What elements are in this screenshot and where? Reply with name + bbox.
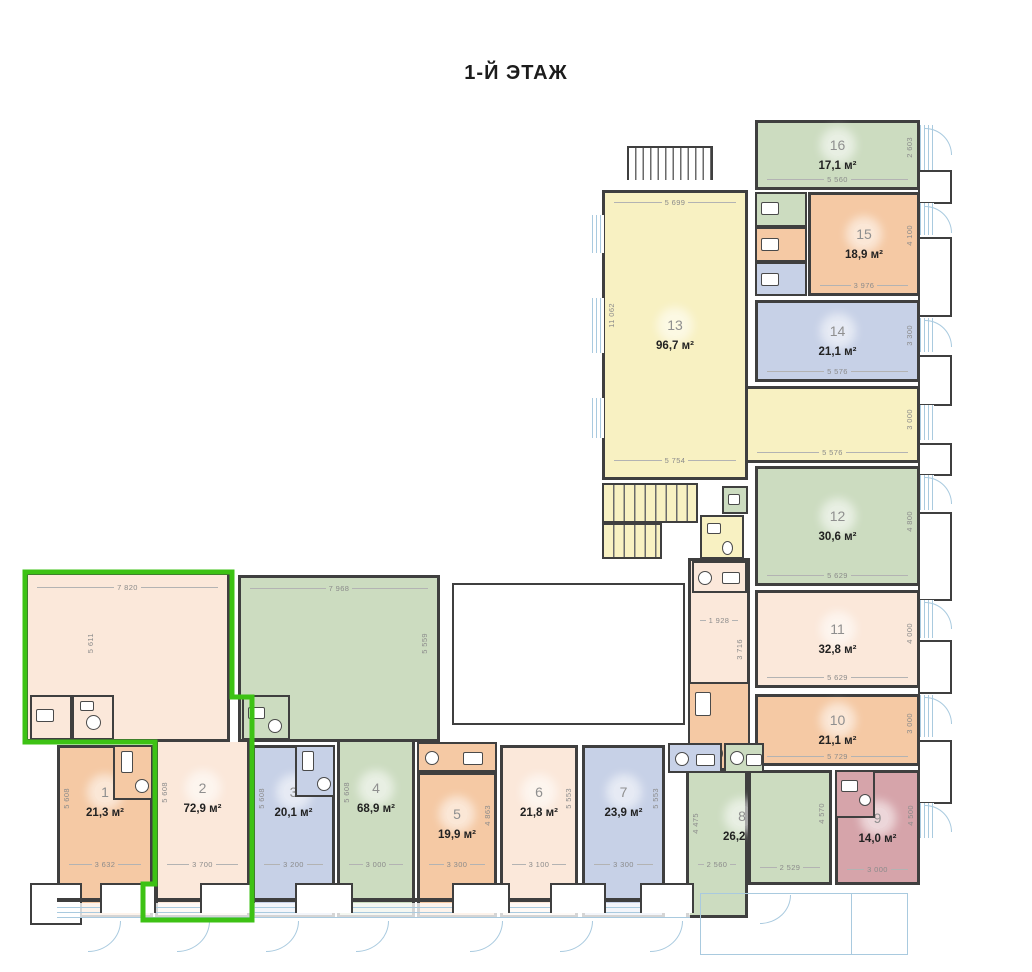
dimension-label: 7 820: [34, 583, 221, 592]
dimension-label: 5 608: [342, 782, 351, 803]
dimension-label: 4 500: [906, 805, 915, 826]
dimension-label: 5 608: [257, 788, 266, 809]
dimension-label: 5 553: [651, 788, 660, 809]
room-area: 23,9 м²: [605, 807, 643, 819]
door-swing-icon: [177, 921, 210, 952]
dimension-label: 3 000: [844, 865, 911, 874]
wc-room: [295, 745, 335, 797]
dimension-label: 3 716: [735, 639, 744, 660]
dimension-label: 5 629: [764, 673, 911, 682]
room-number: 14: [827, 320, 849, 342]
room-14[interactable]: 14 21,1 м² 5 576 3 300: [755, 300, 920, 382]
dimension-label: 4 100: [905, 225, 914, 246]
door-swing-icon: [925, 805, 952, 832]
dimension-label: 1 928: [697, 616, 741, 625]
door-swing-icon: [925, 697, 952, 724]
dimension-label: 5 611: [86, 633, 95, 653]
window-bay: [918, 512, 952, 601]
wc-room: [755, 262, 807, 296]
wc-room: [835, 770, 875, 818]
dimension-label: 5 754: [611, 456, 739, 465]
dimension-label: 5 553: [564, 788, 573, 809]
dimension-label: 5 576: [764, 367, 911, 376]
window-bay: [918, 355, 952, 406]
door-swing-icon: [88, 921, 121, 952]
dimension-label: 5 576: [754, 448, 911, 457]
door-swing-icon: [650, 921, 683, 952]
dimension-label: 5 608: [62, 788, 71, 809]
door-swing-icon: [560, 921, 593, 952]
room-area: 14,0 м²: [859, 833, 897, 845]
room-area: 72,9 м²: [184, 803, 222, 815]
room-number: 13: [664, 314, 686, 336]
wc-room: [722, 486, 748, 514]
dimension-label: 3 000: [905, 409, 914, 430]
dimension-label: 4 863: [483, 805, 492, 826]
door-swing-icon: [925, 602, 952, 629]
window-bay: [918, 237, 952, 317]
page-title: 1-Й ЭТАЖ: [0, 62, 1032, 85]
window: [920, 405, 934, 440]
door-swing-icon: [925, 477, 952, 504]
room-10[interactable]: 10 21,1 м² 5 729 3 000: [755, 694, 920, 766]
window-bay: [918, 740, 952, 804]
wc-room: [755, 192, 807, 227]
dimension-label: 3 100: [509, 860, 569, 869]
window-bay: [918, 640, 952, 694]
dimension-label: 3 300: [591, 860, 656, 869]
room-number: 7: [613, 781, 635, 803]
dimension-label: 3 700: [164, 860, 241, 869]
window-bay: [918, 443, 952, 476]
room-area: 21,3 м²: [86, 807, 124, 819]
room-number: 2: [192, 777, 214, 799]
dimension-label: 3 976: [817, 281, 911, 290]
staircase: [602, 483, 698, 523]
room-number: 10: [827, 709, 849, 731]
porch: [700, 893, 908, 955]
entry-door: [295, 883, 353, 913]
wc-room: [113, 745, 153, 800]
window: [592, 398, 604, 438]
door-swing-icon: [925, 320, 952, 347]
room-number: 5: [446, 803, 468, 825]
room-area: 17,1 м²: [819, 160, 857, 172]
wc-room: [30, 695, 72, 740]
dimension-label: 5 629: [764, 571, 911, 580]
room-8-annex[interactable]: 2 529 4 570: [748, 770, 832, 885]
room-16[interactable]: 16 17,1 м² 5 560 2 603: [755, 120, 920, 190]
dimension-label: 4 800: [905, 511, 914, 532]
wc-room: [417, 742, 497, 772]
dimension-label: 5 729: [764, 752, 911, 761]
entry-door: [452, 883, 510, 913]
dimension-label: 5 560: [764, 175, 911, 184]
door-swing-icon: [266, 921, 299, 952]
dimension-label: 3 200: [261, 860, 326, 869]
room-area: 32,8 м²: [819, 644, 857, 656]
room-area: 18,9 м²: [845, 249, 883, 261]
window: [592, 298, 604, 353]
room-area: 20,1 м²: [275, 807, 313, 819]
dimension-label: 3 000: [905, 713, 914, 734]
room-number: 11: [827, 618, 849, 640]
entry-door: [640, 883, 694, 913]
entry-door: [200, 883, 254, 913]
dimension-label: 5 699: [611, 198, 739, 207]
corridor[interactable]: 5 576 3 000: [748, 386, 920, 463]
room-number: 15: [853, 223, 875, 245]
room-area: 21,1 м²: [819, 346, 857, 358]
wc-room: [724, 743, 764, 773]
window: [592, 215, 604, 253]
void-area: [452, 583, 685, 725]
floor-plan: 1-Й ЭТАЖ 16 17,1 м² 5 560 2 603 15 18,9 …: [0, 0, 1032, 972]
entry-door: [550, 883, 606, 913]
room-area: 68,9 м²: [357, 803, 395, 815]
room-area: 19,9 м²: [438, 829, 476, 841]
room-area: 21,8 м²: [520, 807, 558, 819]
door-swing-icon: [356, 921, 389, 952]
staircase: [602, 523, 662, 559]
dimension-label: 5 559: [420, 633, 429, 654]
room-area: 96,7 м²: [656, 340, 694, 352]
room-number: 16: [827, 134, 849, 156]
dimension-label: 7 968: [247, 584, 431, 593]
dimension-label: 4 000: [905, 623, 914, 644]
wc-room: [72, 695, 114, 740]
wc-room: [700, 515, 744, 559]
wc-room: [668, 743, 722, 773]
dimension-label: 3 000: [346, 860, 406, 869]
dimension-label: 4 570: [817, 803, 826, 824]
dimension-label: 3 632: [66, 860, 144, 869]
dimension-label: 2 603: [905, 137, 914, 158]
room-area: 30,6 м²: [819, 531, 857, 543]
dimension-label: 4 475: [691, 813, 700, 834]
dimension-label: 3 300: [905, 325, 914, 346]
entry-door: [100, 883, 156, 913]
door-swing-icon: [925, 206, 952, 233]
dimension-label: 5 608: [160, 782, 169, 803]
room-12[interactable]: 12 30,6 м² 5 629 4 800: [755, 466, 920, 586]
room-15[interactable]: 15 18,9 м² 3 976 4 100: [808, 192, 920, 296]
door-swing-icon: [925, 128, 952, 155]
room-number: 6: [528, 781, 550, 803]
room-11[interactable]: 11 32,8 м² 5 629 4 000: [755, 590, 920, 688]
dimension-label: 2 529: [757, 863, 823, 872]
door-swing-icon: [470, 921, 503, 952]
wc-room: [755, 227, 807, 262]
dimension-label: 2 560: [695, 860, 739, 869]
wc-room: [242, 695, 290, 740]
dimension-label: 3 300: [426, 860, 488, 869]
dimension-label: 11 062: [607, 303, 616, 328]
room-13[interactable]: 13 96,7 м² 5 699 11 062 5 754: [602, 190, 748, 480]
window-bay: [918, 170, 952, 204]
wc-room: [692, 561, 747, 593]
room-number: 4: [365, 777, 387, 799]
entrance-steps: [627, 146, 713, 180]
room-number: 12: [827, 505, 849, 527]
room-area: 21,1 м²: [819, 735, 857, 747]
